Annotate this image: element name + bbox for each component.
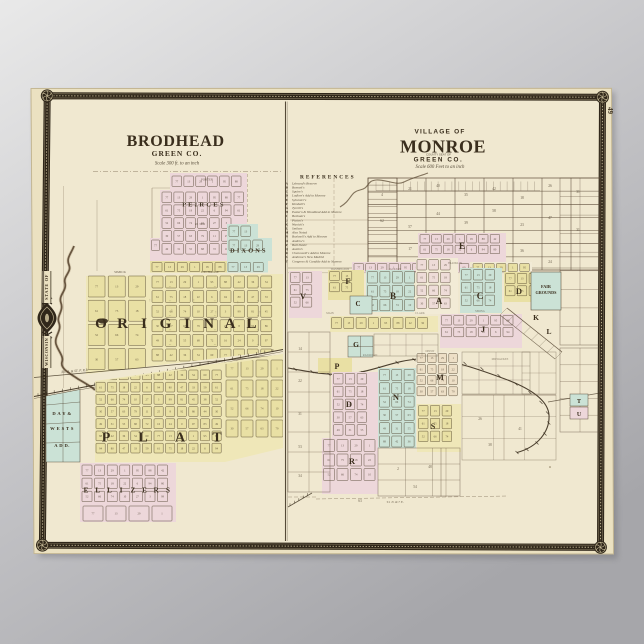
svg-text:A: A [225,316,236,332]
svg-text:GROUNDS: GROUNDS [536,290,558,295]
svg-text:U: U [577,412,582,418]
svg-text:BRODHEAD: BRODHEAD [127,133,225,150]
svg-text:13: 13 [115,285,119,289]
svg-text:VILLAGE OF: VILLAGE OF [415,129,466,136]
svg-text:I: I [120,487,123,495]
svg-text:S: S [166,487,170,495]
svg-text:Scale 300 ft. to an inch: Scale 300 ft. to an inch [155,162,200,167]
svg-text:·•·: ·•· [257,344,260,347]
svg-text:F: F [345,276,350,286]
svg-text:A: A [175,431,186,446]
svg-text:•·•: •·• [215,311,218,314]
svg-text:T.1 N. R.7 E.: T.1 N. R.7 E. [386,500,404,504]
svg-text:23: 23 [520,223,524,227]
svg-text:•·•: •·• [149,299,152,302]
svg-text:63: 63 [358,499,362,503]
svg-text:22: 22 [298,379,302,383]
svg-text:R E F E R E N C E S: R E F E R E N C E S [300,175,354,181]
svg-text:77: 77 [95,285,99,289]
svg-text:42: 42 [492,187,496,191]
svg-text:·•·: ·•· [257,286,260,289]
svg-text:D: D [346,399,352,409]
svg-text:O: O [95,316,107,332]
svg-text:L: L [246,316,256,332]
svg-text:21: 21 [408,187,412,191]
svg-text:SPRING: SPRING [475,310,485,313]
svg-text:48: 48 [428,465,432,469]
svg-text:P: P [102,431,111,446]
svg-text:T: T [577,399,581,405]
svg-text:Z: Z [130,487,135,495]
svg-text:PORTER: PORTER [201,178,214,182]
svg-text:V: V [300,291,307,301]
svg-text:EXCHANGE: EXCHANGE [201,270,219,274]
svg-text:·•·: ·•· [214,344,217,347]
svg-text:DEPOT: DEPOT [425,350,434,353]
svg-text:MAIN: MAIN [326,312,333,315]
svg-text:I: I [184,316,190,332]
svg-text:K: K [533,313,539,322]
svg-text:S: S [431,422,436,431]
svg-text:M: M [436,373,444,382]
svg-text:31: 31 [576,190,580,194]
svg-text:18: 18 [520,196,524,200]
svg-text:Congress & Candide Add to Monr: Congress & Candide Add to Monroe [292,259,342,263]
svg-text:L: L [95,487,100,495]
svg-text:66: 66 [115,333,119,337]
svg-text:61: 61 [95,309,99,313]
svg-text:•·•: •·• [259,311,262,314]
svg-text:·•·: ·•· [169,300,172,303]
svg-text:E: E [459,241,465,251]
svg-text:WASHINGTON: WASHINGTON [331,268,350,271]
svg-text:R: R [117,316,128,332]
svg-text:38: 38 [488,443,492,447]
svg-text:62: 62 [380,219,384,223]
svg-text:L: L [107,487,112,495]
svg-text:18: 18 [135,309,139,313]
svg-text:·•·: ·•· [214,286,217,289]
svg-text:E: E [84,487,89,495]
svg-text:CLARK: CLARK [415,312,424,315]
svg-text:RAILROAD: RAILROAD [363,354,377,357]
svg-text:2: 2 [397,467,399,471]
svg-text:•·•: •·• [237,301,240,304]
svg-text:58: 58 [492,209,496,213]
svg-text:WISCONSIN: WISCONSIN [44,338,49,366]
svg-text:52: 52 [95,333,99,337]
svg-text:53: 53 [298,445,302,449]
svg-text:34: 34 [298,474,302,478]
svg-text:·•·: ·•· [169,315,172,318]
svg-text:GREEN CO.: GREEN CO. [152,149,203,158]
svg-text:C: C [477,291,484,301]
svg-text:E: E [142,487,147,495]
svg-text:JACKSON: JACKSON [389,268,402,271]
svg-text:35: 35 [464,193,468,197]
svg-text:D I X O N S: D I X O N S [230,248,266,255]
svg-text:·•·: ·•· [257,315,260,318]
svg-text:49: 49 [606,107,614,115]
svg-text:A D D.: A D D. [54,443,70,448]
svg-text:W E S T S: W E S T S [50,426,74,431]
svg-text:74: 74 [135,333,139,337]
svg-text:B: B [390,291,396,301]
svg-text:75: 75 [115,309,119,313]
svg-text:17: 17 [408,247,412,251]
svg-text:N: N [393,392,400,402]
svg-text:39: 39 [464,221,468,225]
svg-text:FRANKLIN: FRANKLIN [448,262,462,265]
svg-text:·•·: ·•· [214,329,217,332]
svg-text:·•·: ·•· [169,344,172,347]
svg-text:•·•: •·• [193,299,196,302]
svg-text:•·•: •·• [171,309,174,312]
svg-text:·•·: ·•· [214,315,217,318]
svg-text:26: 26 [478,417,482,421]
svg-text:I: I [141,316,147,332]
svg-text:24: 24 [548,260,552,264]
svg-text:P E I R C E S: P E I R C E S [182,202,224,209]
svg-text:L: L [138,431,147,446]
svg-text:·•·: ·•· [169,329,172,332]
svg-text:D A Y &: D A Y & [52,411,71,416]
svg-text:STATE OF: STATE OF [44,274,49,300]
svg-text:·•·: ·•· [214,300,217,303]
svg-text:SIMICK: SIMICK [114,270,126,274]
svg-text:54: 54 [413,485,417,489]
svg-text:44: 44 [436,212,440,216]
svg-text:R: R [349,456,356,466]
svg-text:41: 41 [518,427,522,431]
svg-text:Scale 600 Feet to an inch: Scale 600 Feet to an inch [416,165,465,170]
svg-text:4: 4 [381,193,383,197]
svg-text:57: 57 [408,225,412,229]
svg-text:A: A [436,296,443,306]
svg-text:63: 63 [135,357,139,361]
svg-text:P: P [335,362,340,371]
svg-text:26: 26 [548,184,552,188]
svg-text:N: N [203,316,214,332]
svg-text:47: 47 [548,216,552,220]
svg-text:57: 57 [115,357,119,361]
svg-text:FAIR: FAIR [541,284,552,289]
svg-text:31: 31 [298,412,302,416]
svg-text:·•·: ·•· [257,300,260,303]
svg-text:·•·: ·•· [169,286,172,289]
svg-text:31: 31 [576,228,580,232]
svg-text:G: G [353,340,359,349]
svg-text:C: C [355,300,360,308]
svg-text:36: 36 [520,249,524,253]
svg-text:29: 29 [135,285,139,289]
svg-text:D: D [516,286,522,296]
svg-text:W. 3RD: W. 3RD [195,222,206,226]
svg-text:14: 14 [298,347,302,351]
svg-text:T: T [212,431,222,446]
svg-text:30: 30 [95,357,99,361]
svg-text:·•·: ·•· [257,329,260,332]
svg-text:MILWAUKEE: MILWAUKEE [492,358,509,361]
svg-text:GREEN CO.: GREEN CO. [414,157,464,164]
svg-text:L: L [546,327,551,336]
